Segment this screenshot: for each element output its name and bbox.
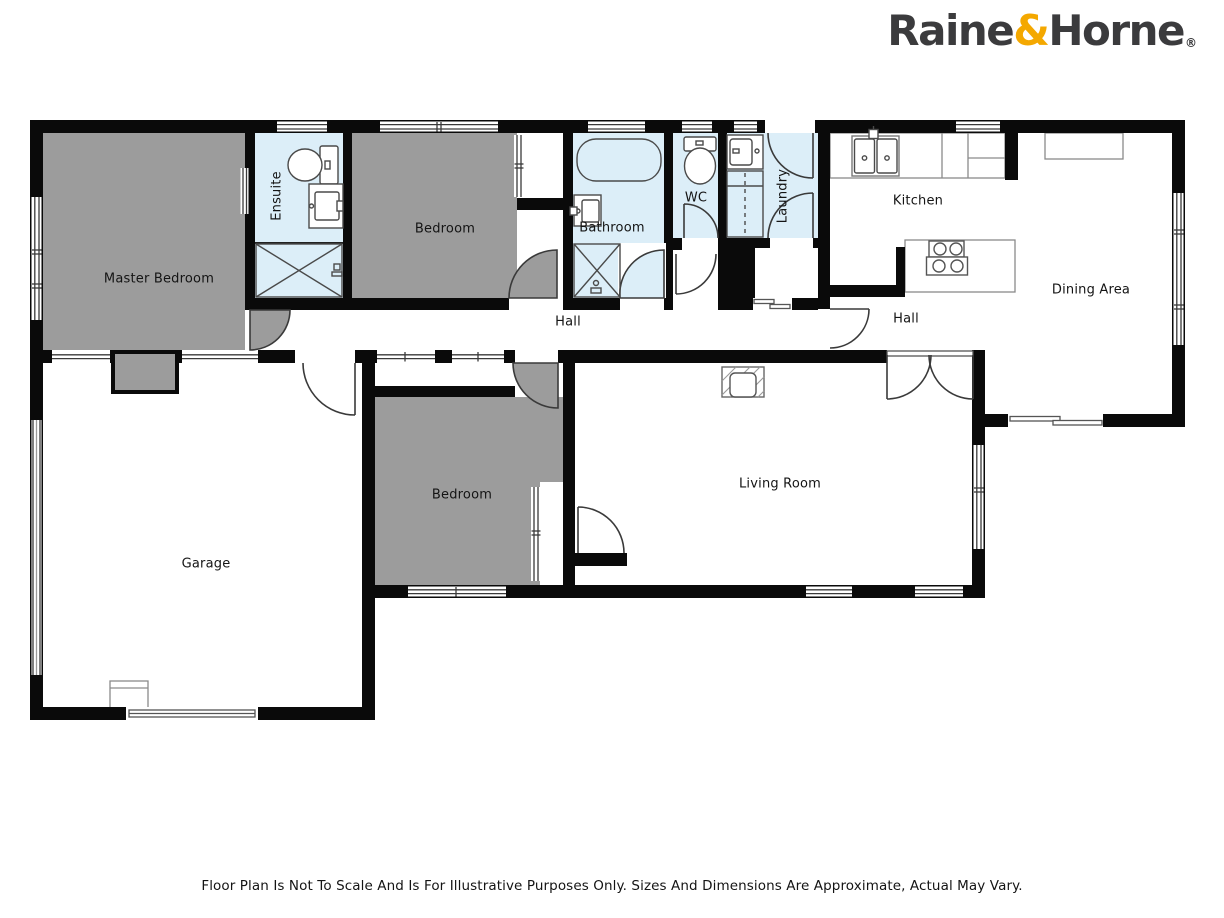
room-label-hall-west: Hall [555,315,581,330]
toilet-icon [684,137,716,184]
disclaimer-text: Floor Plan Is Not To Scale And Is For Il… [0,878,1224,894]
door-swing-icon [303,363,355,415]
room-label-bathroom: Bathroom [579,221,644,236]
window-icon [734,122,757,132]
door-swing-icon [250,310,290,350]
door-swing-icon [887,355,931,399]
sliding-door-icon [377,352,435,362]
room-label-garage: Garage [182,557,231,572]
laundry-tub-icon [727,135,763,169]
sliding-door-icon [531,487,541,581]
floor-plan-drawing [0,0,1224,918]
room-label-ensuite: Ensuite [270,171,285,221]
window-icon [682,122,712,132]
window-icon [380,122,498,132]
room-label-wc: WC [685,191,707,206]
room-label-hall-east: Hall [893,312,919,327]
sliding-door-icon [452,352,504,362]
closet [540,482,563,585]
window-icon [52,352,110,362]
door-swing-icon [830,309,869,348]
sliding-door-icon [753,298,792,310]
window-icon [588,122,645,132]
window-icon [974,445,984,549]
room-label-laundry: Laundry [776,169,791,223]
window-icon [32,197,42,320]
window-icon [277,122,327,132]
window-icon [915,587,963,597]
door-track [887,351,973,356]
door-swing-icon [578,507,624,553]
toilet-icon [288,146,338,184]
door-swing-icon [676,254,716,294]
room-label-dining-area: Dining Area [1052,283,1130,298]
cooktop-icon [927,241,968,275]
garage-door-icon [126,707,258,720]
window-icon [32,420,42,675]
room-label-living-room: Living Room [739,477,821,492]
window-icon [806,587,852,597]
window-icon [1174,193,1184,345]
fireplace-icon [722,367,764,397]
room-label-bedroom-top: Bedroom [415,222,475,237]
window-icon [408,587,506,597]
sliding-door-icon [241,168,249,214]
door-swing-icon [929,355,973,399]
room-label-bedroom-bottom: Bedroom [432,488,492,503]
window-icon [956,122,1000,132]
floor-plan-page: Raine&Horne® [0,0,1224,918]
door-opening [765,120,815,133]
room-label-master-bedroom: Master Bedroom [104,272,214,287]
sliding-door-icon [514,135,524,197]
wardrobe-icon [113,352,177,392]
sliding-door-icon [1008,414,1103,427]
room-label-kitchen: Kitchen [893,194,943,209]
buffet-counter [1045,133,1123,159]
vanity-sink-icon [309,184,343,228]
window-icon [182,352,258,362]
